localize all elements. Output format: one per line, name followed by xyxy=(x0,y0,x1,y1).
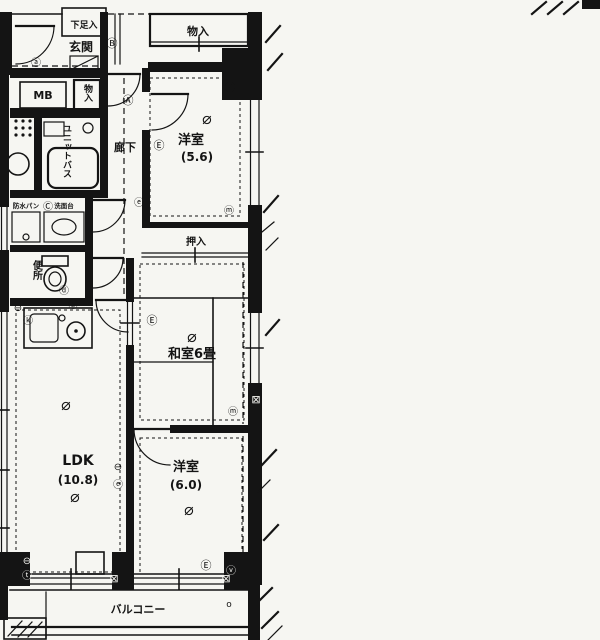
ldk-label: LDK xyxy=(62,453,95,469)
western-room-1-label: 洋室 xyxy=(178,132,204,148)
outlet-marker: ⓚ xyxy=(23,315,33,327)
shoe-box-label: 下足入 xyxy=(70,20,97,31)
outlet-marker: ⊖ xyxy=(14,303,22,314)
washstand-counter xyxy=(44,212,84,242)
vent-marker: ⊠ xyxy=(109,572,118,585)
washer-place xyxy=(7,153,29,175)
western-room-2-size: (6.0) xyxy=(170,478,202,492)
outlet-marker: Ⓔ xyxy=(154,139,165,152)
balcony-partition xyxy=(4,618,46,639)
outlet-marker: ⓖ xyxy=(68,299,78,311)
outlet-marker: ⓣ xyxy=(22,570,32,582)
laundry-pan-label: 防水パン xyxy=(13,201,40,210)
western-room-2-label: 洋室 xyxy=(173,459,199,475)
hatch-marks xyxy=(256,0,600,640)
unit-bath-label: ユニットバス xyxy=(61,124,72,178)
fixtures xyxy=(7,56,104,574)
outlet-marker: ⓔ xyxy=(134,197,144,209)
ceiling-light-symbol: ⌀ xyxy=(61,395,71,414)
ceiling-light-symbol: ⌀ xyxy=(70,487,80,506)
laundry-pan xyxy=(12,212,40,242)
bath-sink xyxy=(83,123,93,133)
meter-box-label: MB xyxy=(33,89,52,102)
vent-marker: ⊠ xyxy=(251,393,260,406)
floor-plan-page: 下足入 玄関 物入 MB 物入 ユニットバス 廊下 洋室 (5.6) 押入 防水… xyxy=(0,0,600,640)
japanese-room-label: 和室6畳 xyxy=(168,346,216,362)
door-marker: Ⓐ xyxy=(123,94,134,107)
outlet-marker: ⓜ xyxy=(224,205,234,217)
ceiling-light-symbol: ⌀ xyxy=(187,327,197,346)
tile-dots xyxy=(14,119,31,136)
kitchen-sink xyxy=(30,314,58,342)
oshiire-label: 押入 xyxy=(186,235,206,248)
balcony-label: バルコニー xyxy=(111,603,166,616)
outlet-marker: Ⓔ xyxy=(225,81,236,94)
bathtub xyxy=(48,148,98,188)
outlet-marker: ⓜ xyxy=(228,406,238,418)
floor-plan: 下足入 玄関 物入 MB 物入 ユニットバス 廊下 洋室 (5.6) 押入 防水… xyxy=(0,0,600,640)
vent-marker: ⊠ xyxy=(221,572,230,585)
switch-marker: ⓐ xyxy=(31,57,41,69)
outlet-marker: Ⓒ xyxy=(43,201,53,213)
outlet-marker: Ⓔ xyxy=(201,559,212,572)
toilet-tank xyxy=(42,256,68,266)
genkan-label: 玄関 xyxy=(69,39,93,54)
washstand-label: 洗面台 xyxy=(54,201,74,210)
corridor-label: 廊下 xyxy=(114,140,136,154)
outlet-marker: Ⓔ xyxy=(147,314,158,327)
ldk-size: (10.8) xyxy=(58,473,99,487)
doorbell-marker: Ⓑ xyxy=(107,37,118,50)
ceiling-light-symbol: ⌀ xyxy=(184,500,194,519)
storage-small-label: 物入 xyxy=(82,83,94,103)
drain-marker: o xyxy=(226,600,232,610)
ldk-box xyxy=(76,552,104,574)
outlet-marker: ⓓ xyxy=(59,285,69,297)
storage-top-label: 物入 xyxy=(187,24,209,38)
western-room-1-size: (5.6) xyxy=(181,150,213,164)
ceiling-light-symbol: ⌀ xyxy=(202,109,212,128)
outlet-marker: ⊖ xyxy=(114,462,122,473)
outlet-marker: ⓔ xyxy=(113,479,123,491)
toilet-label: 便所 xyxy=(31,259,43,281)
outlet-marker: ⊖ xyxy=(23,556,31,567)
